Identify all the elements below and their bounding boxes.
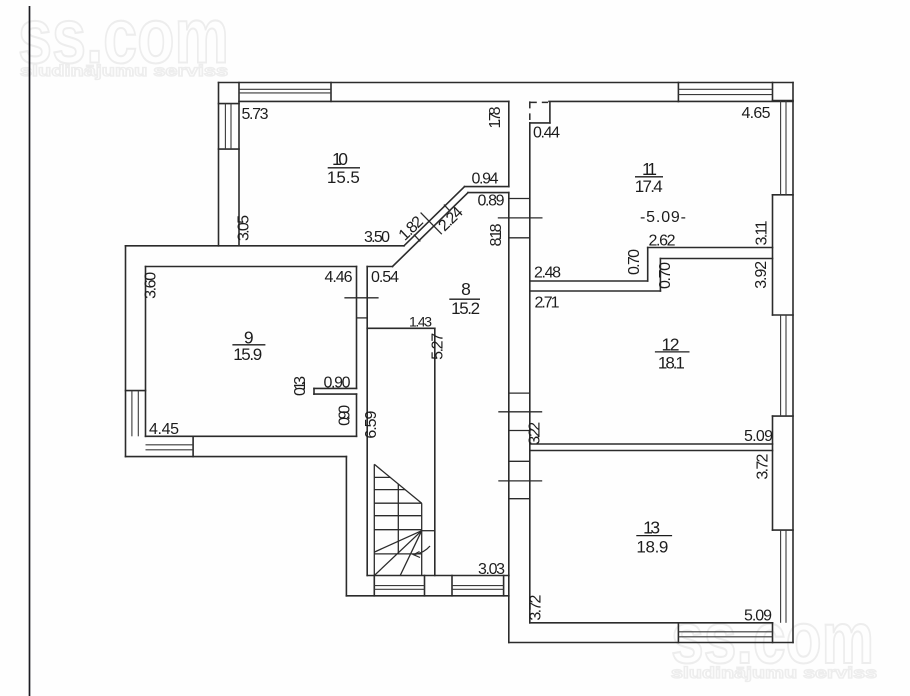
svg-text:17.4: 17.4 bbox=[635, 177, 663, 196]
svg-text:2.62: 2.62 bbox=[649, 233, 676, 250]
svg-text:sludinājumu serviss: sludinājumu serviss bbox=[20, 63, 228, 80]
svg-text:3.72: 3.72 bbox=[528, 595, 545, 621]
svg-text:0.90: 0.90 bbox=[337, 405, 354, 426]
svg-text:0.90: 0.90 bbox=[324, 375, 351, 392]
svg-text:5.09: 5.09 bbox=[744, 428, 773, 445]
svg-text:15.9: 15.9 bbox=[233, 345, 262, 364]
svg-text:0.54: 0.54 bbox=[371, 269, 399, 286]
svg-text:3.50: 3.50 bbox=[364, 229, 390, 246]
svg-text:3.22: 3.22 bbox=[527, 422, 544, 445]
svg-text:4.65: 4.65 bbox=[742, 105, 771, 122]
svg-text:1.43: 1.43 bbox=[409, 314, 432, 330]
svg-text:13: 13 bbox=[643, 518, 660, 538]
svg-text:0.89: 0.89 bbox=[478, 193, 505, 210]
svg-text:10: 10 bbox=[332, 149, 348, 169]
svg-text:3.03: 3.03 bbox=[478, 561, 505, 578]
svg-text:5.73: 5.73 bbox=[242, 106, 269, 123]
svg-text:0.70: 0.70 bbox=[657, 262, 674, 289]
svg-text:4.46: 4.46 bbox=[325, 269, 353, 286]
svg-text:15.2: 15.2 bbox=[451, 299, 480, 318]
svg-text:18.1: 18.1 bbox=[658, 354, 685, 373]
svg-text:4.45: 4.45 bbox=[149, 421, 179, 438]
svg-text:0.13: 0.13 bbox=[292, 376, 309, 396]
svg-text:18.9: 18.9 bbox=[636, 538, 668, 557]
svg-text:sludinājumu serviss: sludinājumu serviss bbox=[671, 665, 877, 682]
svg-text:11: 11 bbox=[642, 159, 657, 179]
svg-text:0.70: 0.70 bbox=[626, 249, 643, 275]
svg-text:1.78: 1.78 bbox=[487, 106, 504, 128]
svg-text:3.11: 3.11 bbox=[754, 220, 771, 245]
svg-text:5.09: 5.09 bbox=[744, 608, 772, 625]
svg-text:0.44: 0.44 bbox=[533, 125, 560, 142]
svg-text:5.27: 5.27 bbox=[430, 333, 447, 360]
svg-text:3.72: 3.72 bbox=[755, 454, 772, 480]
svg-text:2.48: 2.48 bbox=[534, 265, 561, 282]
svg-text:15.5: 15.5 bbox=[327, 168, 360, 187]
svg-text:0.94: 0.94 bbox=[472, 171, 499, 188]
svg-text:8: 8 bbox=[461, 279, 471, 299]
svg-text:-5.09-: -5.09- bbox=[640, 209, 686, 226]
svg-text:3.60: 3.60 bbox=[142, 272, 159, 299]
svg-text:3.92: 3.92 bbox=[753, 261, 770, 289]
svg-text:3.05: 3.05 bbox=[236, 215, 253, 241]
svg-text:6.59: 6.59 bbox=[363, 411, 380, 439]
svg-text:2.71: 2.71 bbox=[535, 295, 560, 312]
svg-text:8.18: 8.18 bbox=[488, 223, 505, 246]
